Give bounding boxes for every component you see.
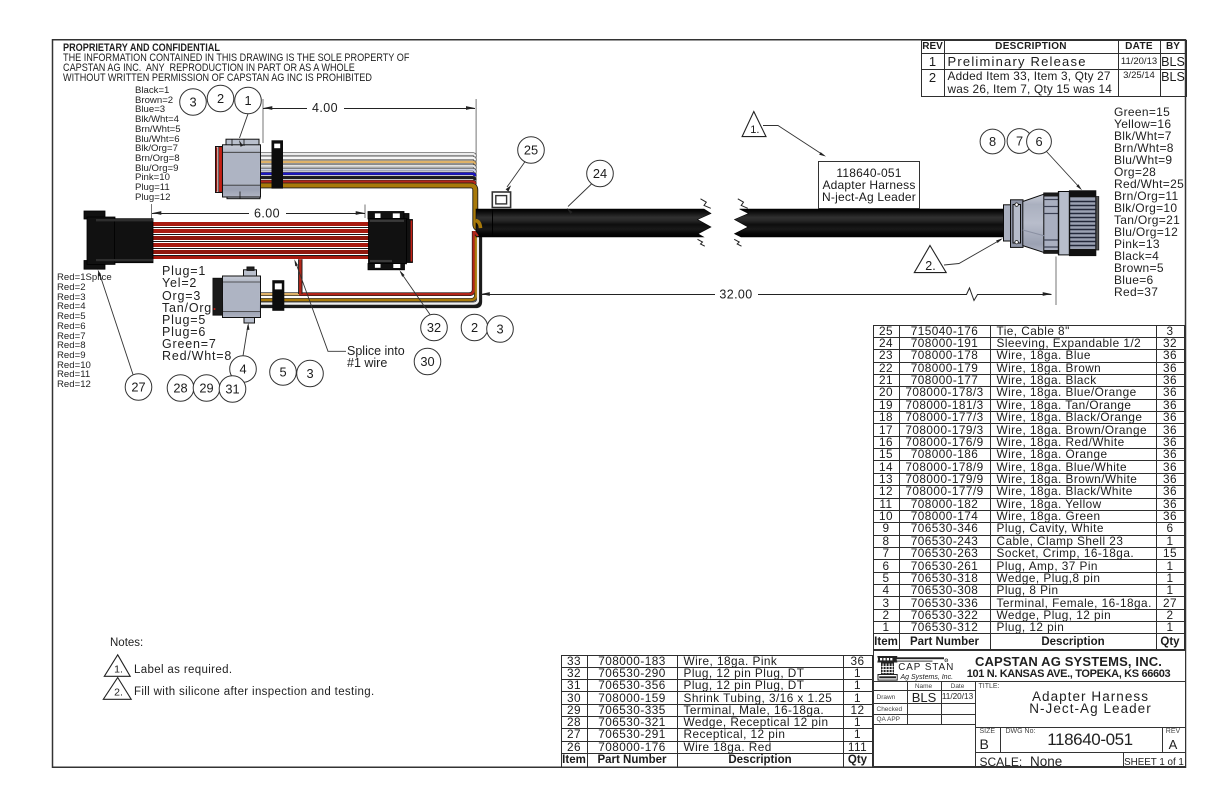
svg-text:25: 25 bbox=[524, 143, 538, 158]
svg-text:2.: 2. bbox=[925, 259, 935, 273]
svg-text:2: 2 bbox=[217, 91, 224, 106]
svg-text:6: 6 bbox=[1035, 134, 1042, 149]
svg-text:2: 2 bbox=[471, 320, 478, 335]
svg-text:3: 3 bbox=[496, 322, 503, 337]
svg-text:24: 24 bbox=[593, 166, 607, 181]
svg-text:30: 30 bbox=[420, 354, 434, 369]
svg-text:31: 31 bbox=[225, 382, 239, 397]
svg-text:7: 7 bbox=[1016, 134, 1023, 149]
svg-text:Ag Systems, Inc.: Ag Systems, Inc. bbox=[899, 674, 953, 681]
svg-text:4.00: 4.00 bbox=[312, 101, 338, 115]
svg-text:2.: 2. bbox=[114, 687, 123, 699]
svg-text:1: 1 bbox=[244, 93, 251, 108]
svg-text:4: 4 bbox=[239, 362, 246, 377]
svg-text:1.: 1. bbox=[750, 124, 759, 136]
svg-text:32: 32 bbox=[427, 320, 441, 335]
svg-text:CAP STAN: CAP STAN bbox=[898, 662, 954, 673]
svg-text:3: 3 bbox=[306, 366, 313, 381]
svg-text:5: 5 bbox=[279, 365, 286, 380]
svg-text:1.: 1. bbox=[114, 664, 123, 676]
svg-text:3: 3 bbox=[189, 95, 196, 110]
svg-text:32.00: 32.00 bbox=[719, 287, 752, 301]
svg-text:29: 29 bbox=[199, 381, 213, 396]
svg-text:6.00: 6.00 bbox=[254, 206, 280, 220]
svg-text:R: R bbox=[945, 659, 948, 663]
svg-text:27: 27 bbox=[131, 380, 145, 395]
svg-text:28: 28 bbox=[173, 381, 187, 396]
svg-text:8: 8 bbox=[989, 134, 996, 149]
